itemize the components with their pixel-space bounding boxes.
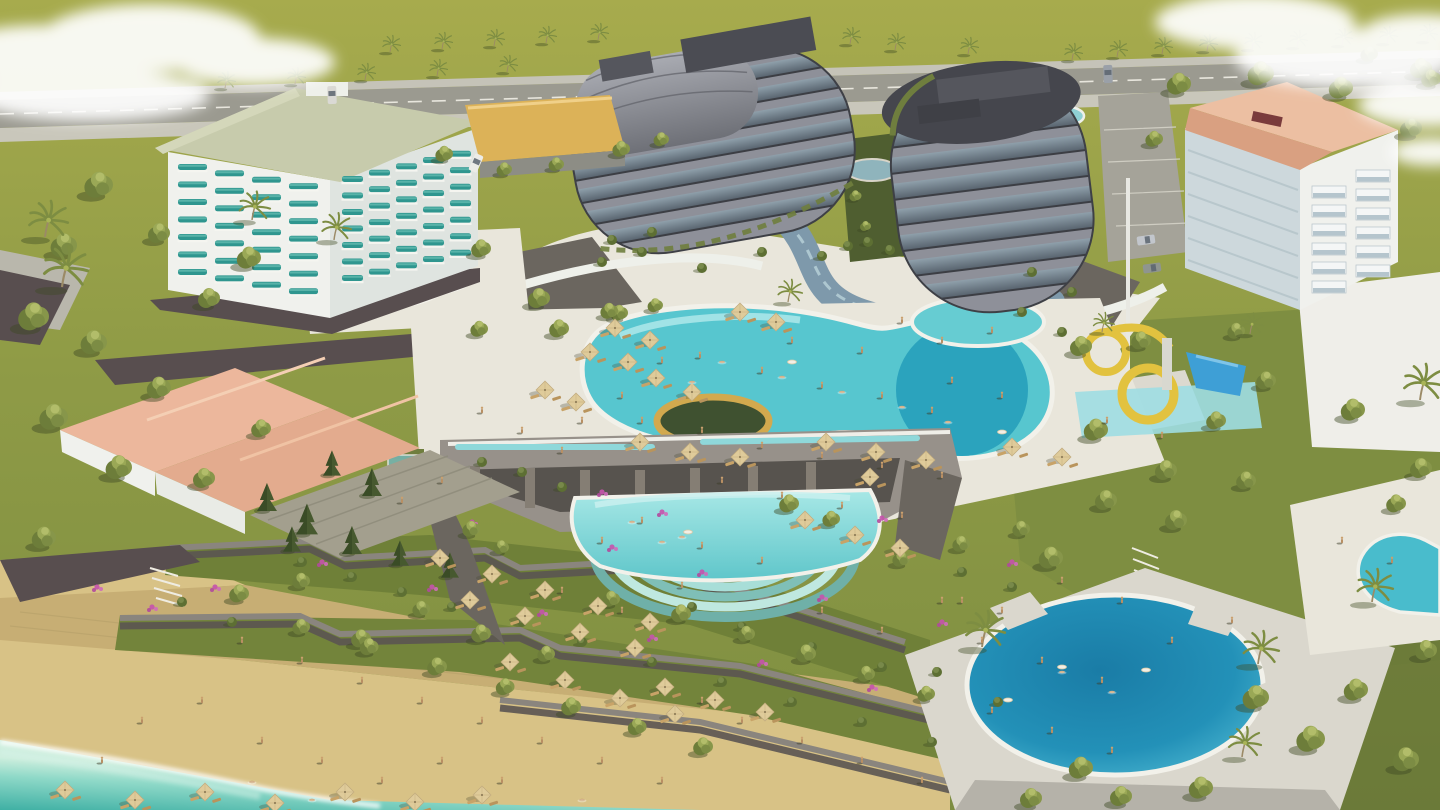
teal-balcony xyxy=(396,229,418,237)
teal-balcony xyxy=(289,183,319,191)
teal-balcony xyxy=(289,236,319,244)
teal-balcony xyxy=(178,234,208,242)
teal-balcony xyxy=(450,200,472,208)
teal-balcony xyxy=(178,269,208,277)
teal-balcony xyxy=(342,242,364,250)
car xyxy=(1103,65,1113,83)
white-balcony xyxy=(1356,189,1390,201)
teal-balcony xyxy=(252,282,282,290)
teal-balcony xyxy=(396,213,418,221)
pool-float xyxy=(1058,665,1067,669)
car xyxy=(327,86,337,104)
pool-float xyxy=(1142,668,1151,672)
teal-balcony xyxy=(396,180,418,188)
teal-balcony xyxy=(423,207,445,215)
teal-balcony xyxy=(396,246,418,254)
white-balcony xyxy=(1312,281,1346,293)
resort-aerial-render xyxy=(0,0,1440,810)
white-balcony xyxy=(1312,186,1346,198)
teal-balcony xyxy=(289,271,319,279)
teal-balcony xyxy=(342,209,364,217)
white-balcony xyxy=(1356,170,1390,182)
teal-balcony xyxy=(396,262,418,270)
teal-balcony xyxy=(252,264,282,272)
white-balcony xyxy=(1312,262,1346,274)
render-canvas xyxy=(0,0,1440,810)
teal-balcony xyxy=(423,240,445,248)
teal-balcony xyxy=(178,199,208,207)
pool-float xyxy=(788,360,797,364)
teal-balcony xyxy=(289,253,319,261)
salmon-roof-apartment xyxy=(1185,82,1398,310)
teal-balcony xyxy=(423,174,445,182)
teal-balcony xyxy=(423,256,445,264)
white-balcony xyxy=(1312,243,1346,255)
teal-balcony xyxy=(215,170,245,178)
white-balcony xyxy=(1356,246,1390,258)
pool-float xyxy=(998,430,1007,434)
teal-balcony xyxy=(450,217,472,225)
teal-balcony xyxy=(369,236,391,244)
white-balcony xyxy=(1312,224,1346,236)
teal-balcony xyxy=(289,201,319,209)
white-balcony xyxy=(1356,227,1390,239)
teal-balcony xyxy=(369,219,391,227)
teal-balcony xyxy=(289,218,319,226)
teal-balcony xyxy=(369,170,391,178)
teal-balcony xyxy=(342,176,364,184)
teal-balcony xyxy=(252,177,282,185)
teal-balcony xyxy=(369,186,391,194)
teal-balcony xyxy=(252,229,282,237)
teal-balcony xyxy=(342,193,364,201)
teal-balcony xyxy=(423,190,445,198)
teal-balcony xyxy=(423,223,445,231)
teal-balcony xyxy=(342,275,364,283)
teal-balcony xyxy=(215,240,245,248)
teal-balcony xyxy=(342,226,364,234)
white-balcony xyxy=(1356,265,1390,277)
teal-balcony xyxy=(289,288,319,296)
teal-balcony xyxy=(396,163,418,171)
teal-balcony xyxy=(178,182,208,190)
teal-balcony xyxy=(369,269,391,277)
teal-balcony xyxy=(178,217,208,225)
white-balcony xyxy=(1312,205,1346,217)
teal-balcony xyxy=(178,164,208,172)
teal-balcony xyxy=(369,252,391,260)
teal-balcony xyxy=(450,167,472,175)
teal-balcony xyxy=(450,184,472,192)
yellow-roof-pavilion xyxy=(465,95,625,178)
teal-balcony xyxy=(369,203,391,211)
teal-balcony xyxy=(178,252,208,260)
white-balcony xyxy=(1356,208,1390,220)
pool-float xyxy=(1004,698,1013,702)
teal-balcony xyxy=(396,196,418,204)
teal-balcony xyxy=(450,233,472,241)
pool-float xyxy=(684,530,693,534)
teal-balcony xyxy=(215,275,245,283)
teal-balcony xyxy=(342,259,364,267)
teal-balcony xyxy=(215,188,245,196)
